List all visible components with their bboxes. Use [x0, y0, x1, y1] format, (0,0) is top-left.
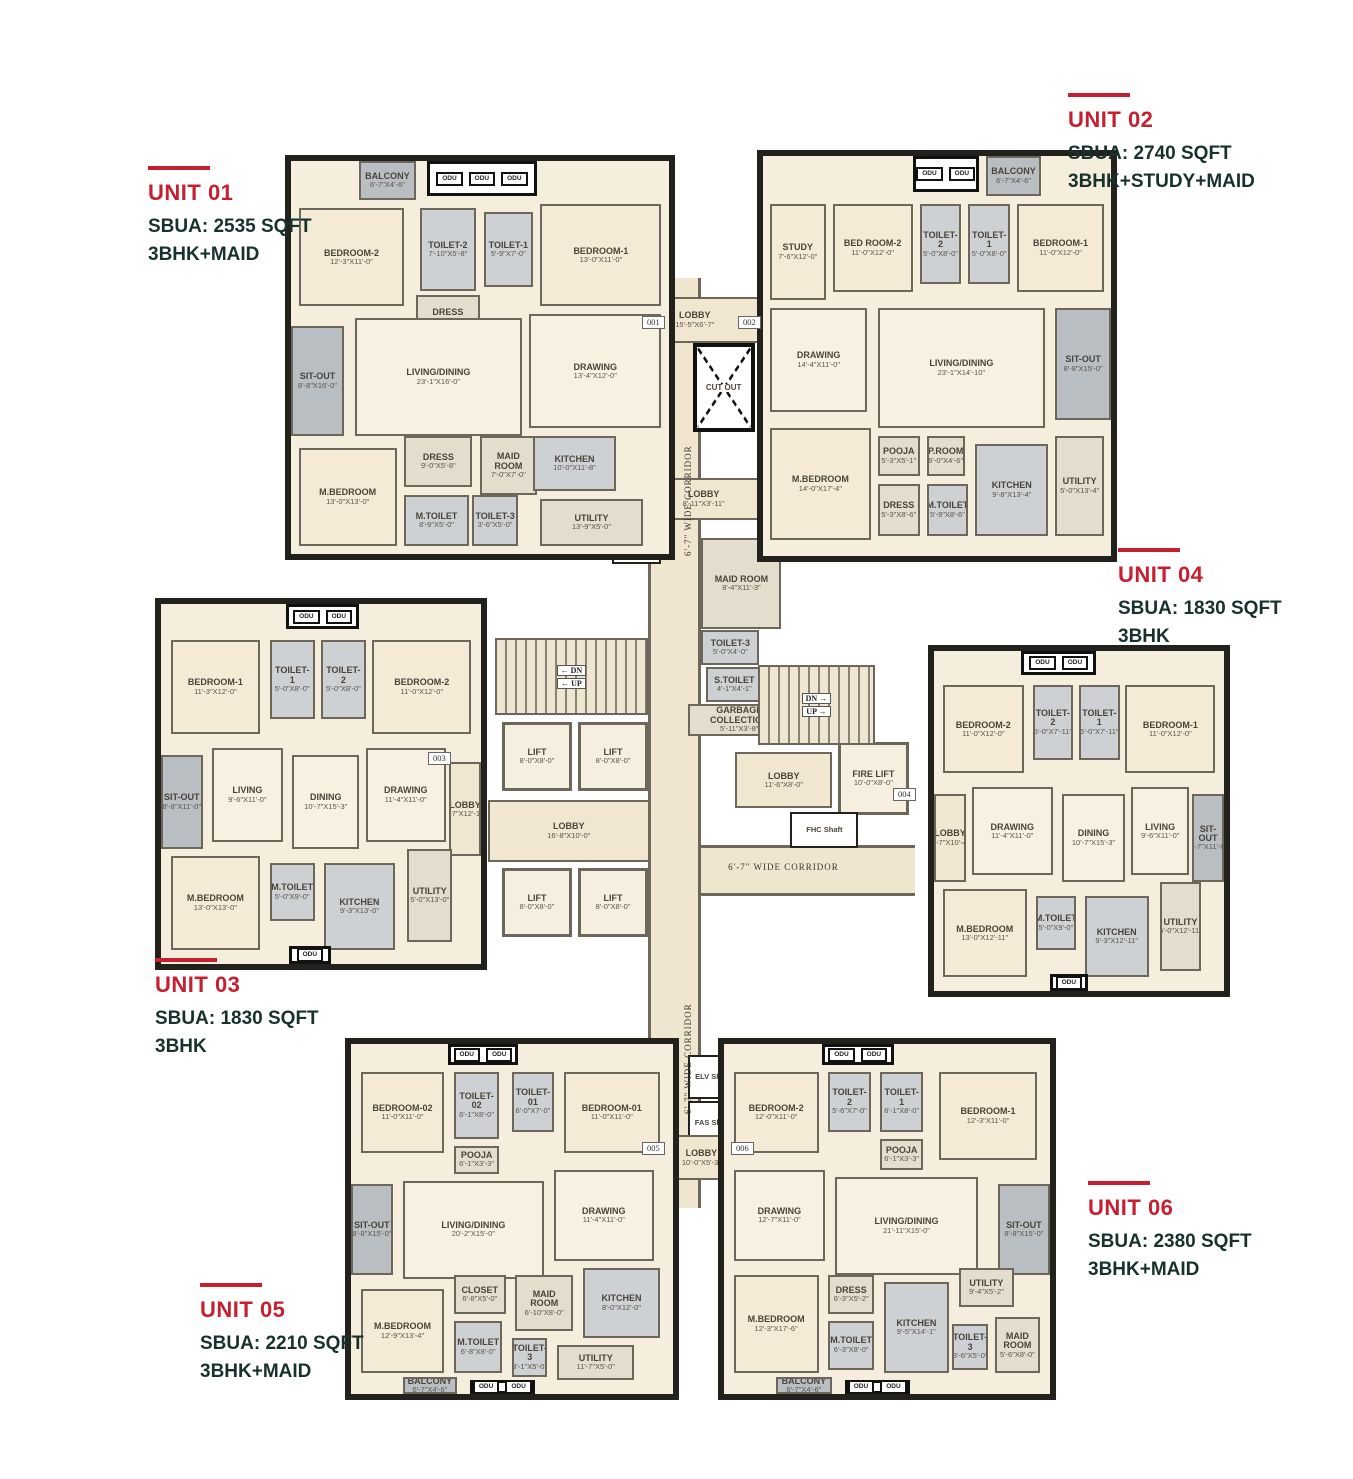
room-bedroom-2: BEDROOM-211'-0"X12'-0" — [943, 685, 1024, 773]
room-dimension: 5'-9"X7'-0" — [491, 250, 526, 258]
odu-unit: ODU — [505, 1380, 531, 1394]
unit-03-sbua: SBUA: 1830 SQFT — [155, 1006, 319, 1032]
room-name: TOILET-2 — [831, 1088, 867, 1107]
room-utility: UTILITY9'-4"X5'-2" — [959, 1268, 1014, 1307]
room-dimension: 11'-0"X12'-0" — [1149, 730, 1192, 738]
room-dimension: 12'-3"X11'-0" — [967, 1117, 1010, 1125]
room-dimension: 6'-7"X4'-6" — [996, 177, 1031, 185]
door-tag-006: 006 — [731, 1142, 754, 1155]
room-fire-lift: FIRE LIFT10'-0"X8'-0" — [838, 742, 909, 815]
unit-02-label-block: UNIT 02 SBUA: 2740 SQFT 3BHK+STUDY+MAID — [1068, 93, 1255, 194]
corridor-label-right: 6'-7" WIDE CORRIDOR — [728, 862, 839, 872]
room-dimension: 9'-0"X5'-8" — [421, 462, 456, 470]
room-dimension: 8'-7"X11'-0" — [1192, 843, 1224, 851]
room-name: SIT-OUT — [1195, 825, 1221, 844]
room-dimension: 8'-8"X15'-0" — [1004, 1230, 1043, 1238]
room-balcony: BALCONY6'-7"X4'-6" — [359, 161, 416, 200]
unit-04-config: 3BHK — [1118, 624, 1282, 650]
room-dimension: 6'-7"X4'-6" — [786, 1386, 821, 1394]
odu-unit: ODU — [454, 1048, 480, 1062]
odu-unit: ODU — [293, 610, 319, 624]
room-m-toilet: M.TOILET5'-0"X9'-0" — [270, 863, 315, 921]
room-dimension: 5'-0"X7'-11" — [1080, 728, 1119, 736]
room-maid-room: MAID ROOM7'-0"X7'-0" — [480, 436, 537, 495]
unit-01-title: UNIT 01 — [148, 180, 312, 206]
room-bedroom-1: BEDROOM-113'-0"X11'-0" — [540, 204, 661, 306]
room-living-dining: LIVING/DINING23'-1"X16'-0" — [355, 318, 521, 436]
room-p-room: P.ROOM6'-0"X4'-6" — [927, 436, 965, 476]
room-sit-out: SIT-OUT8'-8"X16'-0" — [291, 326, 344, 436]
room-dimension: 7'-6"X12'-0" — [778, 253, 817, 261]
room-bedroom-1: BEDROOM-111'-3"X12'-0" — [171, 640, 261, 734]
room-dimension: 5'-0"X4'-0" — [713, 648, 748, 656]
room-sit-out: SIT-OUT8'-8"X15'-0" — [351, 1184, 393, 1275]
room-m-toilet: M.TOILET6'-3"X8'-0" — [828, 1321, 874, 1370]
room-m-bedroom: M.BEDROOM13'-0"X13'-0" — [299, 448, 397, 546]
room-dimension: 4'-1"X4'-1" — [717, 685, 752, 693]
room-dimension: 6'-7"X10'-4" — [934, 839, 966, 847]
room-bed-room-2: BED ROOM-211'-0"X12'-0" — [833, 204, 913, 292]
odu-unit: ODU — [828, 1048, 854, 1062]
room-name: CUT OUT — [706, 384, 742, 392]
room-toilet-1: TOILET-15'-0"X8'-0" — [968, 204, 1010, 284]
odu-unit: ODU — [1062, 656, 1088, 670]
room-dimension: 5'-0"X7'-11" — [1034, 728, 1073, 736]
room-dimension: 8'-0"X12'-0" — [602, 1304, 641, 1312]
door-tag-003: 003 — [428, 752, 451, 765]
room-dimension: 7'-10"X5'-8" — [428, 250, 467, 258]
room-dimension: 8'-8"X15'-0" — [352, 1230, 391, 1238]
room-dimension: 23'-1"X14'-10" — [938, 369, 985, 377]
room-dimension: 5'-6"X8'-0" — [1000, 1351, 1035, 1359]
room-dimension: 11'-3"X12'-0" — [194, 688, 237, 696]
room-bedroom-1: BEDROOM-111'-0"X12'-0" — [1017, 204, 1104, 292]
odu-strip: ODUODU — [1021, 651, 1096, 675]
room-name: TOILET-01 — [515, 1088, 551, 1107]
room-toilet-01: TOILET-016'-0"X7'-0" — [512, 1072, 554, 1132]
odu-unit: ODU — [880, 1380, 906, 1394]
red-rule — [200, 1283, 262, 1287]
room-fhc-shaft: FHC Shaft — [790, 812, 858, 848]
room-name: TOILET-1 — [273, 666, 312, 685]
red-rule — [148, 166, 210, 170]
unit-05-floorplan: BEDROOM-0211'-0"X11'-0"TOILET-026'-1"X8'… — [345, 1038, 679, 1400]
room-dimension: 9'-5"X14'-1" — [897, 1328, 936, 1336]
room-dimension: 12'-3"X11'-0" — [330, 258, 373, 266]
room-kitchen: KITCHEN9'-5"X14'-1" — [884, 1282, 949, 1373]
room-dimension: 15'-5"X6'-7" — [675, 321, 714, 329]
room-drawing: DRAWING11'-4"X11'-0" — [972, 787, 1053, 875]
room-dimension: 9'-3"X12'-11" — [1095, 937, 1138, 945]
room-living-dining: LIVING/DINING20'-2"X15'-0" — [403, 1181, 545, 1279]
room-toilet-2: TOILET-25'-0"X7'-11" — [1033, 685, 1074, 760]
room-dimension: 5'-0"X13'-0" — [410, 896, 449, 904]
room-dimension: 5'-0"X13'-4" — [1060, 487, 1099, 495]
room-dimension: 8'-8"X16'-0" — [298, 382, 337, 390]
room-balcony: BALCONY6'-7"X4'-6" — [403, 1377, 458, 1395]
room-toilet-2: TOILET-25'-6"X7'-0" — [828, 1072, 870, 1132]
room-name: TOILET-02 — [457, 1092, 496, 1111]
floor-plan-canvas: UNIT 01 SBUA: 2535 SQFT 3BHK+MAID UNIT 0… — [0, 0, 1353, 1479]
room-bedroom-1: BEDROOM-112'-3"X11'-0" — [939, 1072, 1037, 1160]
room-lobby: LOBBY6'-7"X12'-11" — [449, 762, 481, 856]
unit-06-title: UNIT 06 — [1088, 1195, 1252, 1221]
room-sit-out: SIT-OUT8'-8"X15'-0" — [998, 1184, 1050, 1275]
room-m-bedroom: M.BEDROOM12'-3"X17'-6" — [734, 1275, 819, 1373]
room-dimension: 10'-7"X15'-3" — [304, 803, 347, 811]
room-toilet-3: TOILET-33'-6"X5'-0" — [952, 1324, 988, 1370]
odu-strip: ODUODU — [822, 1044, 894, 1065]
room-dimension: 13'-0"X13'-0" — [194, 904, 237, 912]
room-kitchen: KITCHEN9'-3"X13'-0" — [324, 863, 394, 949]
room-maid-room: MAID ROOM6'-10"X8'-0" — [515, 1275, 573, 1331]
unit-04-title: UNIT 04 — [1118, 562, 1282, 588]
room-dimension: 12'-0"X11'-0" — [755, 1113, 798, 1121]
room-dimension: 6'-0"X7'-0" — [515, 1107, 550, 1115]
room-dimension: 5'-0"X9'-0" — [1038, 924, 1073, 932]
room-dimension: 16'-8"X10'-0" — [547, 832, 590, 840]
room-dimension: 8'-0"X8'-0" — [596, 903, 631, 911]
unit-01-floorplan: BALCONY6'-7"X4'-6"BEDROOM-212'-3"X11'-0"… — [285, 155, 675, 560]
unit-01-sbua: SBUA: 2535 SQFT — [148, 214, 312, 240]
room-dimension: 13'-0"X11'-0" — [580, 256, 623, 264]
room-dimension: 9'-6"X11'-0" — [228, 796, 267, 804]
corridor-label-top: 6'-7" WIDE CORRIDOR — [683, 456, 693, 556]
odu-unit: ODU — [861, 1048, 887, 1062]
room-dimension: 3'-6"X5'-0" — [953, 1352, 988, 1360]
room-dimension: 8'-0"X8'-0" — [596, 757, 631, 765]
room-dimension: 10'-7"X15'-3" — [1072, 839, 1115, 847]
room-dimension: 5'-3"X8'-6" — [881, 511, 916, 519]
room-utility: UTILITY13'-9"X5'-0" — [540, 499, 642, 546]
room-dimension: 8'-0"X8'-0" — [520, 757, 555, 765]
room-name: MAID ROOM — [518, 1290, 570, 1309]
room-toilet-2: TOILET-25'-0"X8'-0" — [920, 204, 962, 284]
room-m-toilet: M.TOILET6'-8"X8'-0" — [454, 1321, 502, 1374]
unit-03-config: 3BHK — [155, 1034, 319, 1060]
room-dimension: 5'-6"X7'-0" — [832, 1107, 867, 1115]
unit-05-config: 3BHK+MAID — [200, 1359, 364, 1385]
room-dimension: 6'-8"X5'-0" — [462, 1295, 497, 1303]
room-dimension: 8'-8"X15'-0" — [1064, 365, 1103, 373]
room-lift: LIFT8'-0"X8'-0" — [502, 722, 572, 792]
room-pooja: POOJA6'-1"X3'-3" — [880, 1139, 922, 1171]
room-dimension: 5'-11"X3'-8" — [720, 725, 759, 733]
room-dimension: 11'-4"X11'-0" — [583, 1216, 625, 1224]
unit-03-label-block: UNIT 03 SBUA: 1830 SQFT 3BHK — [155, 958, 319, 1059]
red-rule — [1088, 1181, 1150, 1185]
room-lift: LIFT8'-0"X8'-0" — [502, 868, 572, 938]
room-dimension: 8'-9"X5'-0" — [419, 521, 454, 529]
room-lobby: LOBBY6'-7"X10'-4" — [934, 794, 966, 882]
room-dimension: 5'-0"X8'-0" — [972, 250, 1007, 258]
odu-unit: ODU — [1029, 656, 1055, 670]
room-bedroom-1: BEDROOM-111'-0"X12'-0" — [1125, 685, 1215, 773]
room-m-bedroom: M.BEDROOM13'-0"X12'-11" — [943, 889, 1027, 977]
room-name: TOILET-2 — [923, 231, 959, 250]
room-dress: DRESS5'-3"X8'-6" — [878, 484, 920, 536]
odu-strip: ODUODU — [448, 1044, 519, 1065]
unit-05-sbua: SBUA: 2210 SQFT — [200, 1331, 364, 1357]
odu-unit: ODU — [949, 167, 975, 181]
room-m-toilet: M.TOILET5'-0"X9'-0" — [1036, 896, 1077, 950]
room-toilet-1: TOILET-15'-0"X7'-11" — [1079, 685, 1120, 760]
room-dimension: 9'-3"X13'-0" — [340, 907, 379, 915]
room-toilet-1: TOILET-15'-9"X7'-0" — [484, 212, 533, 287]
room-dining: DINING10'-7"X15'-3" — [1062, 794, 1126, 882]
room-drawing: DRAWING13'-4"X12'-0" — [529, 314, 661, 428]
odu-unit: ODU — [848, 1380, 874, 1394]
room-dining: DINING10'-7"X15'-3" — [292, 755, 359, 849]
room-dimension: 6'-8"X8'-0" — [461, 1348, 496, 1356]
unit-02-title: UNIT 02 — [1068, 107, 1255, 133]
room-toilet-02: TOILET-026'-1"X8'-0" — [454, 1072, 499, 1139]
room-m-bedroom: M.BEDROOM13'-0"X13'-0" — [171, 856, 261, 950]
room-sit-out: SIT-OUT8'-7"X11'-0" — [1192, 794, 1224, 882]
room-dimension: 6'-1"X3'-3" — [459, 1160, 494, 1168]
unit-04-floorplan: BEDROOM-211'-0"X12'-0"TOILET-25'-0"X7'-1… — [928, 645, 1230, 997]
room-toilet-3: TOILET-33'-6"X5'-0" — [472, 495, 517, 546]
room-dimension: 11'-4"X11'-0" — [991, 832, 1033, 840]
room-dimension: 6'-7"X4'-6" — [412, 1386, 447, 1394]
room-dimension: 11'-0"X11'-0" — [591, 1113, 633, 1121]
room-dimension: 3'-6"X5'-0" — [478, 521, 513, 529]
odu-unit: ODU — [916, 167, 942, 181]
door-tag-002: 002 — [738, 316, 761, 329]
odu-unit: ODU — [436, 172, 462, 186]
room-pooja: POOJA5'-3"X5'-1" — [878, 436, 920, 476]
room-name: TOILET-1 — [883, 1088, 919, 1107]
room-dress: DRESS9'-0"X5'-8" — [404, 436, 472, 487]
room-dimension: 13'-0"X12'-11" — [961, 934, 1008, 942]
odu-strip: ODUODU — [470, 1380, 534, 1394]
room-name: TOILET-3 — [513, 1344, 547, 1363]
room-name: FHC Shaft — [806, 826, 842, 834]
unit-05-title: UNIT 05 — [200, 1297, 364, 1323]
room-m-bedroom: M.BEDROOM12'-9"X13'-4" — [361, 1289, 445, 1373]
room-dimension: 11'-0"X12'-0" — [962, 730, 1005, 738]
room-s-toilet: S.TOILET4'-1"X4'-1" — [706, 667, 763, 702]
room-utility: UTILITY5'-0"X12'-11" — [1160, 882, 1201, 970]
room-utility: UTILITY11'-7"X5'-0" — [557, 1345, 634, 1380]
room-dimension: 13'-9"X5'-0" — [572, 523, 611, 531]
room-balcony: BALCONY6'-7"X4'-6" — [776, 1377, 831, 1395]
room-study: STUDY7'-6"X12'-0" — [770, 204, 826, 300]
room-lift: LIFT8'-0"X8'-0" — [578, 722, 648, 792]
room-dimension: 10'-0"X11'-8" — [553, 464, 596, 472]
room-dimension: 8'-4"X11'-3" — [722, 584, 761, 592]
room-maid-room: MAID ROOM5'-6"X8'-0" — [995, 1317, 1041, 1373]
room-closet: CLOSET6'-8"X5'-0" — [454, 1275, 506, 1314]
door-tag-001: 001 — [642, 316, 665, 329]
room-sit-out: SIT-OUT8'-8"X15'-0" — [1055, 308, 1111, 420]
room-dimension: 8'-8"X11'-0" — [163, 803, 202, 811]
odu-unit: ODU — [486, 1048, 512, 1062]
room-name: TOILET-2 — [324, 666, 363, 685]
room-toilet-3: TOILET-33'-1"X5'-0" — [512, 1338, 547, 1377]
odu-strip: ODUODUODU — [427, 161, 537, 196]
room-dimension: 5'-3"X5'-1" — [881, 457, 916, 465]
odu-unit: ODU — [501, 172, 527, 186]
room-utility: UTILITY5'-0"X13'-4" — [1055, 436, 1104, 536]
stair-up-arrow: ← UP — [557, 678, 586, 689]
unit-02-config: 3BHK+STUDY+MAID — [1068, 169, 1255, 195]
room-bedroom-2: BEDROOM-211'-0"X12'-0" — [372, 640, 471, 734]
room-living: LIVING9'-6"X11'-0" — [212, 748, 282, 842]
room-dimension: 11'-6"X8'-0" — [764, 781, 803, 789]
unit-02-floorplan: BALCONY6'-7"X4'-6"STUDY7'-6"X12'-0"BED R… — [757, 150, 1117, 562]
room-toilet-1: TOILET-16'-1"X8'-0" — [880, 1072, 922, 1132]
room-dimension: 11'-0"X12'-0" — [1039, 249, 1082, 257]
room-lobby: LOBBY16'-8"X10'-0" — [488, 800, 650, 862]
room-dimension: 9'-8"X13'-4" — [992, 491, 1031, 499]
room-dimension: 20'-2"X15'-0" — [452, 1230, 495, 1238]
room-dimension: 6'-1"X3'-3" — [884, 1155, 919, 1163]
room-dimension: 12'-3"X17'-6" — [755, 1325, 798, 1333]
room-dress: DRESS6'-3"X5'-2" — [828, 1275, 874, 1314]
room-kitchen: KITCHEN9'-3"X12'-11" — [1085, 896, 1149, 978]
room-drawing: DRAWING11'-4"X11'-0" — [554, 1170, 654, 1261]
room-dimension: 5'-0"X8'-0" — [923, 250, 958, 258]
odu-unit: ODU — [326, 610, 352, 624]
room-m-bedroom: M.BEDROOM14'-0"X17'-4" — [770, 428, 871, 540]
room-dimension: 6'-7"X12'-11" — [449, 810, 481, 818]
room-toilet-2: TOILET-25'-0"X8'-0" — [321, 640, 366, 719]
room-lobby: LOBBY11'-6"X8'-0" — [735, 752, 832, 808]
unit-06-floorplan: BEDROOM-212'-0"X11'-0"TOILET-25'-6"X7'-0… — [718, 1038, 1056, 1400]
room-m-toilet: M.TOILET5'-9"X8'-6" — [927, 484, 969, 536]
odu-unit: ODU — [473, 1380, 499, 1394]
red-rule — [1068, 93, 1130, 97]
room-dimension: 10'-0"X5'-3" — [682, 1159, 721, 1167]
room-bedroom-2: BEDROOM-212'-3"X11'-0" — [299, 208, 405, 306]
room-bedroom-2: BEDROOM-212'-0"X11'-0" — [734, 1072, 819, 1153]
room-dimension: 12'-9"X13'-4" — [381, 1332, 424, 1340]
unit-05-label-block: UNIT 05 SBUA: 2210 SQFT 3BHK+MAID — [200, 1283, 364, 1384]
room-dimension: 10'-0"X8'-0" — [854, 779, 893, 787]
room-dimension: 3'-1"X5'-0" — [512, 1363, 547, 1371]
odu-strip: ODUODU — [286, 604, 360, 629]
unit-01-label-block: UNIT 01 SBUA: 2535 SQFT 3BHK+MAID — [148, 166, 312, 267]
room-dimension: 6'-7"X4'-6" — [370, 181, 405, 189]
room-dimension: 9'-6"X11'-0" — [1141, 832, 1180, 840]
odu-strip: ODUODU — [913, 156, 979, 192]
room-dimension: 6'-1"X8'-0" — [884, 1107, 919, 1115]
room-dimension: 13'-0"X13'-0" — [326, 498, 369, 506]
odu-strip: ODUODU — [845, 1380, 910, 1394]
room-m-toilet: M.TOILET8'-9"X5'-0" — [404, 495, 468, 546]
room-dimension: 14'-0"X17'-4" — [799, 485, 842, 493]
unit-01-config: 3BHK+MAID — [148, 242, 312, 268]
room-dimension: 6'-10"X8'-0" — [525, 1309, 564, 1317]
unit-04-label-block: UNIT 04 SBUA: 1830 SQFT 3BHK — [1118, 548, 1282, 649]
room-bedroom-02: BEDROOM-0211'-0"X11'-0" — [361, 1072, 445, 1153]
odu-unit: ODU — [469, 172, 495, 186]
unit-06-sbua: SBUA: 2380 SQFT — [1088, 1229, 1252, 1255]
room-sit-out: SIT-OUT8'-8"X11'-0" — [161, 755, 203, 849]
room-dimension: 21'-11"X15'-0" — [883, 1227, 930, 1235]
room-dimension: 11'-0"X12'-0" — [400, 688, 443, 696]
room-dimension: 14'-4"X11'-0" — [797, 361, 840, 369]
room-kitchen: KITCHEN10'-0"X11'-8" — [533, 436, 616, 491]
room-dimension: 11'-4"X11'-0" — [385, 796, 427, 804]
room-toilet-1: TOILET-15'-0"X8'-0" — [270, 640, 315, 719]
room-dimension: 5'-0"X8'-0" — [326, 685, 361, 693]
room-dimension: 5'-9"X8'-6" — [930, 511, 965, 519]
unit-02-sbua: SBUA: 2740 SQFT — [1068, 141, 1255, 167]
door-tag-004: 004 — [893, 788, 916, 801]
stair-dn-arrow: ← DN — [557, 665, 587, 676]
unit-03-floorplan: BEDROOM-111'-3"X12'-0"TOILET-15'-0"X8'-0… — [155, 598, 487, 970]
room-name: TOILET-2 — [1036, 709, 1071, 728]
room-drawing: DRAWING12'-7"X11'-0" — [734, 1170, 825, 1261]
room-dimension: 12'-7"X11'-0" — [758, 1216, 801, 1224]
room-cut-out: CUT OUT — [693, 343, 755, 432]
red-rule — [155, 958, 217, 962]
room-lift: LIFT8'-0"X8'-0" — [578, 868, 648, 938]
room-dimension: 6'-1"X8'-0" — [459, 1111, 494, 1119]
room-kitchen: KITCHEN8'-0"X12'-0" — [583, 1268, 660, 1338]
room-dimension: 5'-0"X8'-0" — [275, 685, 310, 693]
odu-strip: ODU — [1050, 974, 1088, 991]
room-toilet-3: TOILET-35'-0"X4'-0" — [701, 630, 759, 665]
room-bedroom-01: BEDROOM-0111'-0"X11'-0" — [564, 1072, 661, 1153]
room-dimension: 9'-4"X5'-2" — [969, 1288, 1004, 1296]
room-living-dining: LIVING/DINING23'-1"X14'-10" — [878, 308, 1045, 428]
room-name: TOILET-1 — [971, 231, 1007, 250]
room-living: LIVING9'-6"X11'-0" — [1131, 787, 1189, 875]
unit-06-label-block: UNIT 06 SBUA: 2380 SQFT 3BHK+MAID — [1088, 1181, 1252, 1282]
unit-03-title: UNIT 03 — [155, 972, 319, 998]
unit-04-sbua: SBUA: 1830 SQFT — [1118, 596, 1282, 622]
room-dimension: 6'-3"X5'-2" — [834, 1295, 869, 1303]
room-dimension: 5'-0"X12'-11" — [1160, 927, 1201, 935]
room-name: MAID ROOM — [998, 1332, 1038, 1351]
room-utility: UTILITY5'-0"X13'-0" — [407, 849, 452, 943]
room-name: TOILET-3 — [953, 1333, 987, 1352]
room-living-dining: LIVING/DINING21'-11"X15'-0" — [835, 1177, 978, 1275]
room-balcony: BALCONY6'-7"X4'-6" — [986, 156, 1042, 196]
room-drawing: DRAWING14'-4"X11'-0" — [770, 308, 867, 412]
unit-06-config: 3BHK+MAID — [1088, 1257, 1252, 1283]
room-dimension: 6'-3"X8'-0" — [834, 1346, 869, 1354]
room-dimension: 6'-0"X4'-6" — [928, 457, 963, 465]
room-dimension: 23'-1"X16'-0" — [417, 378, 460, 386]
room-name: MAID ROOM — [483, 452, 534, 471]
odu-unit: ODU — [1056, 976, 1082, 990]
stair-up-arrow: UP → — [802, 706, 830, 717]
room-dimension: 11'-0"X12'-0" — [851, 249, 894, 257]
corridor-label-bottom: 6'-7" WIDE CORRIDOR — [683, 1014, 693, 1114]
room-dimension: 11'-0"X11'-0" — [381, 1113, 423, 1121]
room-dimension: 8'-0"X8'-0" — [520, 903, 555, 911]
staircase: DN →UP → — [758, 665, 875, 745]
room-dimension: 13'-4"X12'-0" — [574, 372, 617, 380]
room-kitchen: KITCHEN9'-8"X13'-4" — [975, 444, 1048, 536]
room-dimension: 5'-0"X9'-0" — [275, 893, 310, 901]
room-dimension: 7'-0"X7'-0" — [491, 471, 526, 479]
room-toilet-2: TOILET-27'-10"X5'-8" — [420, 208, 477, 291]
stair-dn-arrow: DN → — [802, 693, 832, 704]
room-name: TOILET-1 — [1082, 709, 1117, 728]
door-tag-005: 005 — [642, 1142, 665, 1155]
staircase: ← DN← UP — [495, 638, 648, 715]
room-dimension: 11'-7"X5'-0" — [576, 1363, 615, 1371]
red-rule — [1118, 548, 1180, 552]
room-pooja: POOJA6'-1"X3'-3" — [454, 1146, 499, 1174]
